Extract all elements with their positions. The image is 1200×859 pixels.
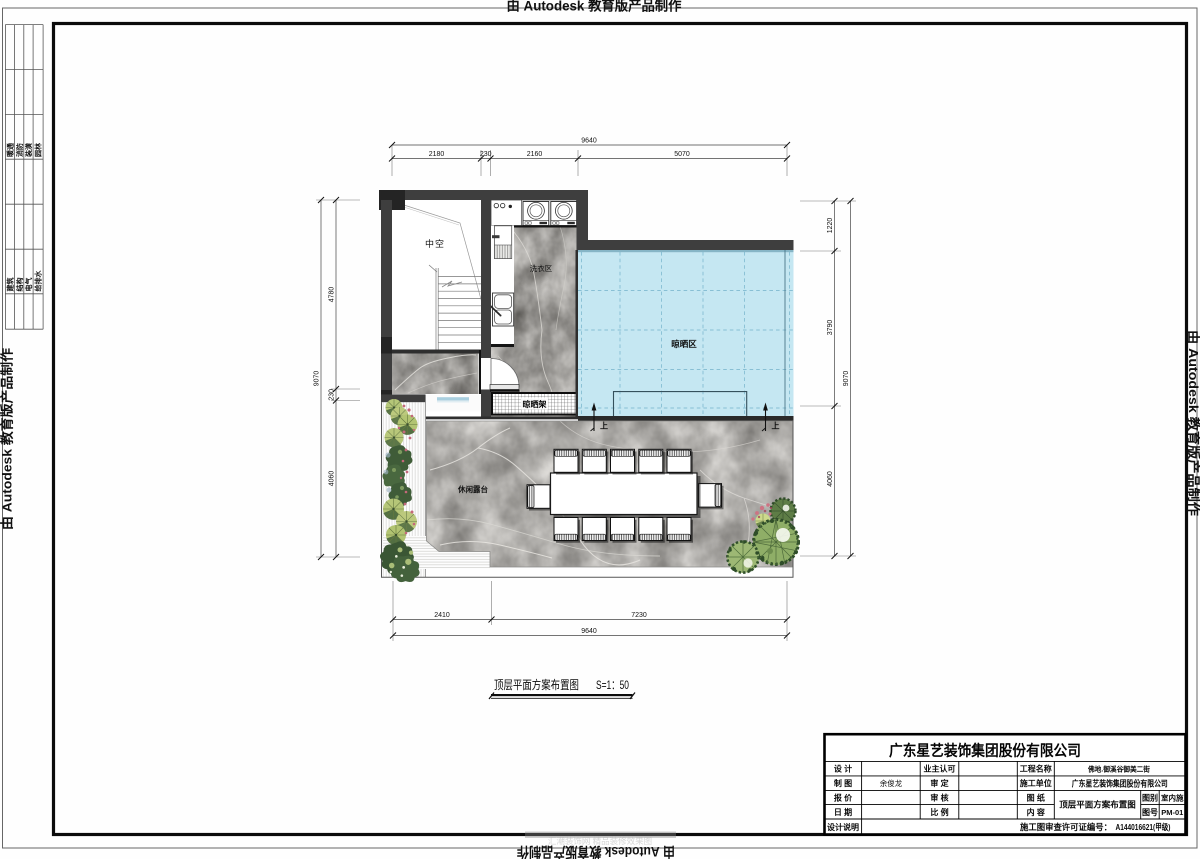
svg-text:内 容: 内 容 xyxy=(1027,807,1045,817)
svg-text:7230: 7230 xyxy=(631,612,647,619)
svg-text:余俊龙: 余俊龙 xyxy=(880,778,903,788)
svg-text:图别: 图别 xyxy=(1142,794,1158,803)
svg-text:施工单位: 施工单位 xyxy=(1020,778,1052,788)
svg-text:4780: 4780 xyxy=(329,287,336,303)
svg-text:电气: 电气 xyxy=(24,278,33,292)
svg-text:装潢: 装潢 xyxy=(24,143,33,158)
svg-text:结构: 结构 xyxy=(15,278,24,293)
svg-text:给排水: 给排水 xyxy=(34,270,43,292)
svg-text:9640: 9640 xyxy=(581,628,597,635)
svg-text:晾晒架: 晾晒架 xyxy=(523,399,547,409)
svg-text:由 Autodesk 教育版产品制作: 由 Autodesk 教育版产品制作 xyxy=(507,0,682,14)
svg-text:1220: 1220 xyxy=(827,218,834,234)
svg-text:汇潮装饰网 精品装修效果图: 汇潮装饰网 精品装修效果图 xyxy=(548,836,652,846)
svg-text:审 定: 审 定 xyxy=(930,778,948,788)
svg-text:顶层平面方案布置图: 顶层平面方案布置图 xyxy=(494,677,579,692)
svg-text:佛地.御溪谷御美二街: 佛地.御溪谷御美二街 xyxy=(1087,765,1150,774)
svg-text:广东星艺装饰集团股份有限公司: 广东星艺装饰集团股份有限公司 xyxy=(889,742,1081,760)
svg-text:设 计: 设 计 xyxy=(834,764,852,774)
svg-text:2180: 2180 xyxy=(429,151,445,158)
svg-text:广东星艺装饰集团股份有限公司: 广东星艺装饰集团股份有限公司 xyxy=(1072,779,1168,789)
svg-text:消防: 消防 xyxy=(15,143,24,157)
svg-text:上: 上 xyxy=(772,421,780,431)
svg-text:4060: 4060 xyxy=(329,471,336,487)
svg-text:审 核: 审 核 xyxy=(930,793,948,803)
svg-text:洗衣区: 洗衣区 xyxy=(530,263,553,273)
svg-text:A144016621(甲级): A144016621(甲级) xyxy=(1116,822,1171,832)
svg-text:230: 230 xyxy=(480,151,492,158)
svg-text:晾晒区: 晾晒区 xyxy=(671,339,697,349)
svg-text:业主认可: 业主认可 xyxy=(924,764,956,774)
svg-text:日 期: 日 期 xyxy=(834,807,852,817)
svg-text:9070: 9070 xyxy=(314,371,321,387)
svg-text:工程名称: 工程名称 xyxy=(1020,764,1052,774)
svg-text:S=1：50: S=1：50 xyxy=(596,678,629,692)
svg-text:上: 上 xyxy=(600,421,608,431)
svg-text:230: 230 xyxy=(329,389,336,401)
svg-text:施工图审查许可证编号：: 施工图审查许可证编号： xyxy=(1020,822,1112,832)
svg-text:室内施: 室内施 xyxy=(1161,793,1184,803)
svg-text:由 Autodesk 教育版产品制作: 由 Autodesk 教育版产品制作 xyxy=(1186,330,1200,516)
svg-text:中空: 中空 xyxy=(425,238,445,249)
svg-text:园林: 园林 xyxy=(34,142,43,157)
svg-text:设计说明: 设计说明 xyxy=(827,822,859,832)
svg-text:由 Autodesk 教育版产品制作: 由 Autodesk 教育版产品制作 xyxy=(517,844,675,859)
svg-text:PM-01: PM-01 xyxy=(1161,808,1183,817)
svg-text:3790: 3790 xyxy=(827,320,834,336)
svg-text:2410: 2410 xyxy=(434,612,450,619)
svg-text:9640: 9640 xyxy=(581,138,597,145)
svg-text:顶层平面方案布置图: 顶层平面方案布置图 xyxy=(1059,800,1136,810)
svg-text:图 纸: 图 纸 xyxy=(1027,793,1045,803)
svg-text:制 图: 制 图 xyxy=(834,778,852,788)
svg-text:2160: 2160 xyxy=(527,151,543,158)
svg-text:9070: 9070 xyxy=(843,371,850,387)
svg-text:4060: 4060 xyxy=(827,471,834,487)
svg-text:报 价: 报 价 xyxy=(834,793,853,803)
svg-text:建筑: 建筑 xyxy=(6,278,15,292)
svg-text:由 Autodesk 教育版产品制作: 由 Autodesk 教育版产品制作 xyxy=(0,348,15,530)
svg-text:5070: 5070 xyxy=(674,151,690,158)
svg-text:休闲露台: 休闲露台 xyxy=(457,484,488,494)
svg-text:比 例: 比 例 xyxy=(930,807,948,817)
svg-text:图号: 图号 xyxy=(1142,808,1158,817)
svg-text:暖通: 暖通 xyxy=(6,142,15,157)
